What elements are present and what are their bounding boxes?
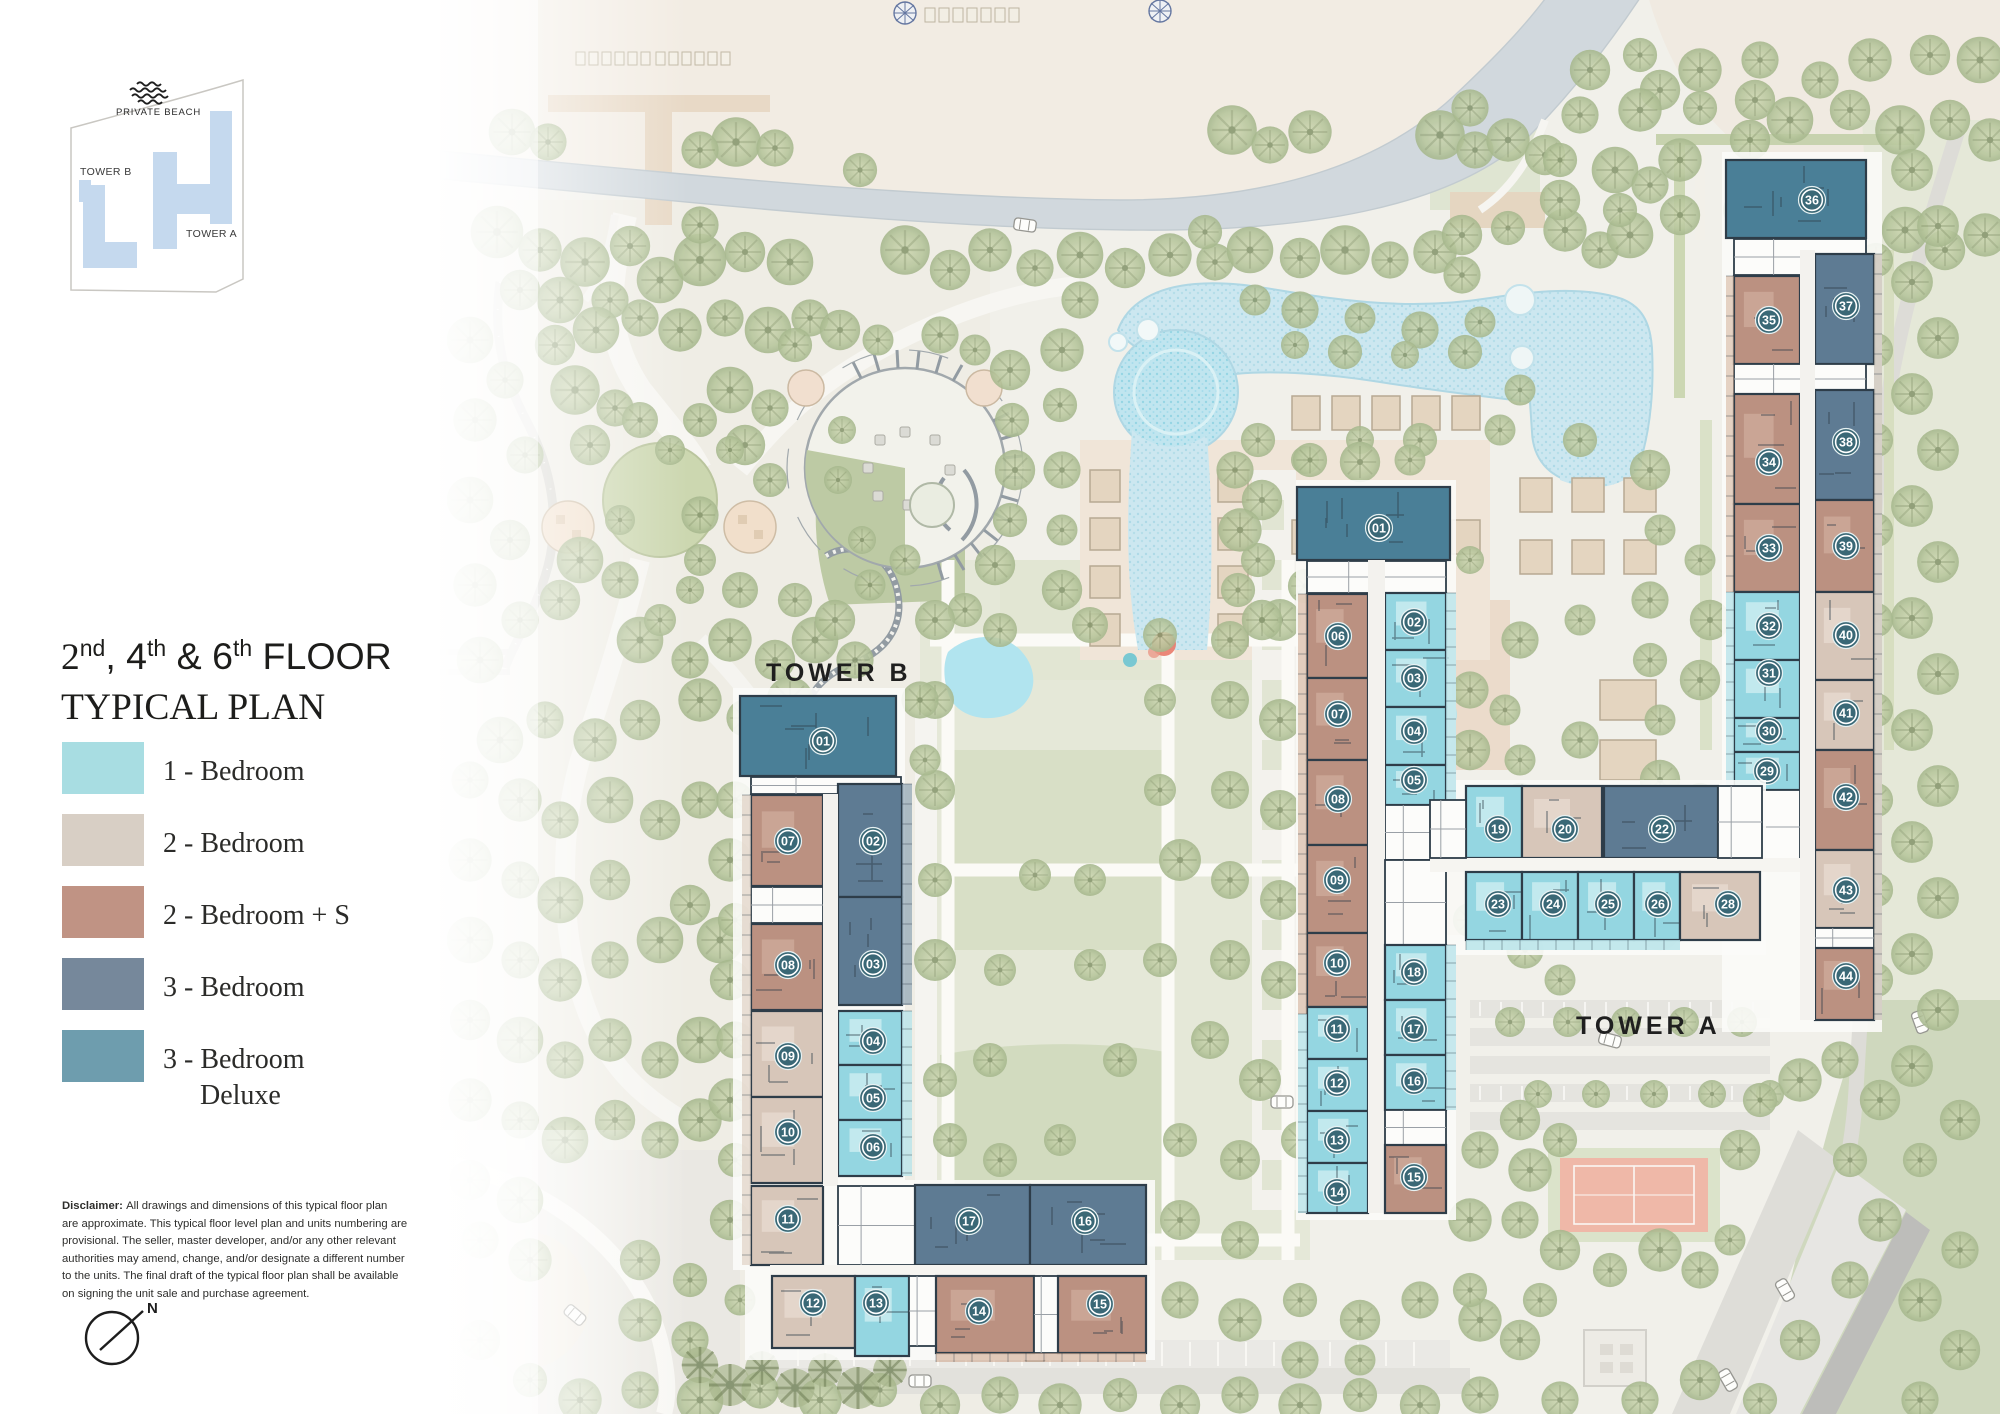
svg-text:02: 02 (866, 835, 880, 849)
svg-text:13: 13 (869, 1297, 883, 1311)
svg-text:19: 19 (1491, 823, 1505, 837)
svg-text:2nd, 4th & 6th FLOOR: 2nd, 4th & 6th FLOOR (61, 635, 392, 678)
svg-text:10: 10 (1330, 957, 1344, 971)
svg-text:12: 12 (1330, 1077, 1344, 1091)
svg-text:TOWER B: TOWER B (766, 659, 912, 687)
svg-text:08: 08 (1331, 793, 1345, 807)
svg-text:08: 08 (781, 959, 795, 973)
svg-text:35: 35 (1762, 314, 1776, 328)
svg-text:3 - Bedroom: 3 - Bedroom (163, 1044, 305, 1075)
svg-text:TOWER A: TOWER A (186, 228, 237, 240)
svg-text:32: 32 (1762, 620, 1776, 634)
svg-text:11: 11 (1330, 1023, 1343, 1037)
svg-text:25: 25 (1601, 898, 1615, 912)
svg-text:06: 06 (866, 1141, 880, 1155)
svg-text:authorities may amend, change,: authorities may amend, change, and/or de… (62, 1253, 405, 1265)
svg-text:41: 41 (1839, 707, 1853, 721)
svg-text:01: 01 (1372, 522, 1386, 536)
svg-text:38: 38 (1839, 436, 1853, 450)
svg-text:14: 14 (1330, 1186, 1344, 1200)
svg-text:20: 20 (1558, 823, 1572, 837)
svg-text:36: 36 (1805, 194, 1819, 208)
svg-text:are approximate. This typical: are approximate. This typical floor leve… (62, 1218, 407, 1230)
svg-text:18: 18 (1407, 966, 1421, 980)
svg-text:42: 42 (1839, 791, 1853, 805)
svg-text:TOWER B: TOWER B (80, 166, 132, 178)
svg-text:05: 05 (866, 1092, 880, 1106)
svg-text:24: 24 (1546, 898, 1560, 912)
svg-text:on signing the unit sale and p: on signing the unit sale and purchase ag… (62, 1288, 309, 1300)
svg-text:17: 17 (962, 1215, 976, 1229)
svg-text:04: 04 (1407, 725, 1421, 739)
svg-text:16: 16 (1078, 1215, 1092, 1229)
svg-text:TYPICAL PLAN: TYPICAL PLAN (61, 687, 325, 728)
svg-text:14: 14 (972, 1305, 986, 1319)
svg-text:31: 31 (1762, 667, 1776, 681)
svg-text:16: 16 (1407, 1075, 1421, 1089)
svg-text:37: 37 (1839, 300, 1853, 314)
svg-text:04: 04 (866, 1035, 880, 1049)
svg-text:06: 06 (1331, 630, 1345, 644)
svg-text:Deluxe: Deluxe (200, 1080, 281, 1111)
svg-text:PRIVATE BEACH: PRIVATE BEACH (116, 107, 201, 118)
svg-text:03: 03 (866, 958, 880, 972)
svg-text:12: 12 (806, 1297, 820, 1311)
svg-text:28: 28 (1721, 898, 1735, 912)
svg-text:07: 07 (781, 835, 795, 849)
svg-text:22: 22 (1655, 823, 1669, 837)
svg-text:TOWER A: TOWER A (1576, 1012, 1721, 1040)
svg-text:15: 15 (1093, 1298, 1107, 1312)
svg-text:33: 33 (1762, 542, 1776, 556)
svg-text:23: 23 (1491, 898, 1505, 912)
svg-text:05: 05 (1407, 774, 1421, 788)
svg-text:10: 10 (781, 1126, 795, 1140)
svg-text:30: 30 (1762, 725, 1776, 739)
svg-text:Disclaimer: All drawings and d: Disclaimer: All drawings and dimensions … (62, 1200, 387, 1212)
svg-text:3 - Bedroom: 3 - Bedroom (163, 972, 305, 1003)
svg-text:09: 09 (1330, 874, 1344, 888)
svg-text:15: 15 (1407, 1171, 1421, 1185)
svg-text:01: 01 (816, 735, 830, 749)
svg-text:provisional. The seller, maste: provisional. The seller, master develope… (62, 1235, 397, 1247)
svg-text:07: 07 (1331, 708, 1345, 722)
svg-text:43: 43 (1839, 884, 1853, 898)
svg-text:44: 44 (1839, 970, 1853, 984)
svg-text:17: 17 (1407, 1023, 1421, 1037)
svg-text:N: N (147, 1300, 158, 1317)
svg-text:29: 29 (1760, 765, 1774, 779)
svg-text:2 - Bedroom: 2 - Bedroom (163, 828, 305, 859)
svg-text:34: 34 (1762, 456, 1776, 470)
svg-text:39: 39 (1839, 540, 1853, 554)
svg-text:26: 26 (1651, 898, 1665, 912)
svg-text:03: 03 (1407, 672, 1421, 686)
svg-text:40: 40 (1839, 629, 1853, 643)
svg-text:to the units. The final draft: to the units. The final draft of the typ… (62, 1270, 398, 1282)
svg-text:2 - Bedroom + S: 2 - Bedroom + S (163, 900, 350, 931)
svg-text:02: 02 (1407, 616, 1421, 630)
svg-text:09: 09 (781, 1050, 795, 1064)
svg-text:11: 11 (781, 1213, 794, 1227)
svg-text:1 - Bedroom: 1 - Bedroom (163, 756, 305, 787)
svg-text:13: 13 (1330, 1134, 1344, 1148)
